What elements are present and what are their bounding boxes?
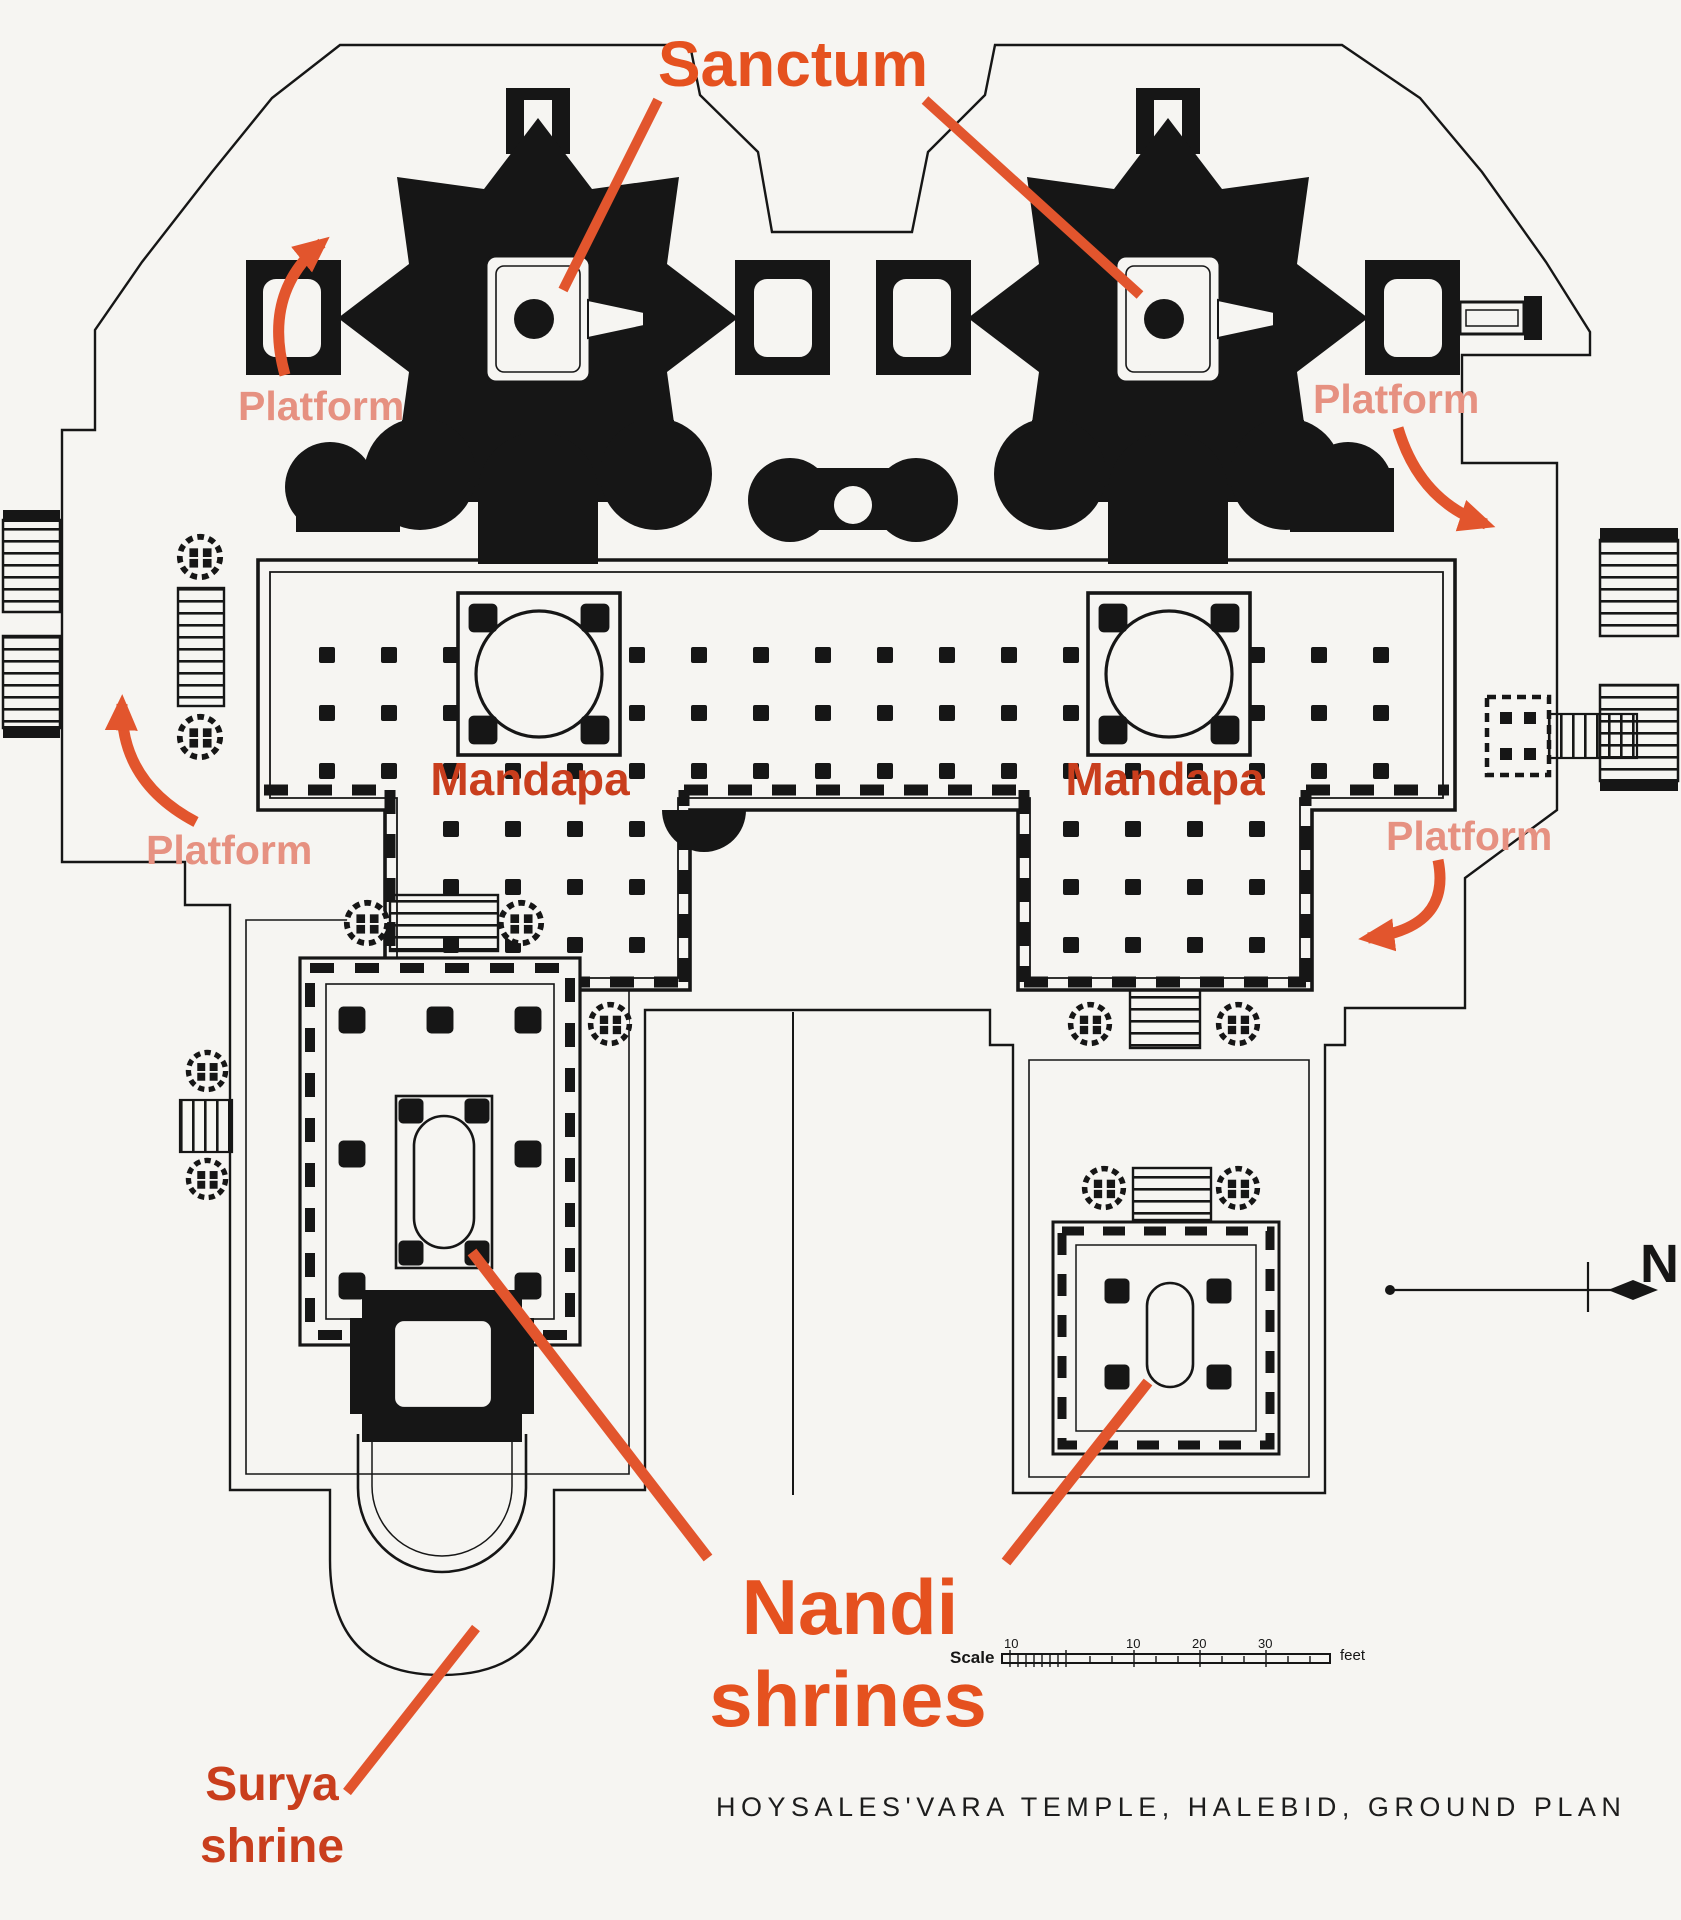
left-nandi-pavilion	[180, 895, 580, 1345]
temple-ground-plan: N Scale 10 10 20 30 feet HOYSALES'VARA T…	[0, 0, 1681, 1920]
surya-shrine-label-line2: shrine	[200, 1820, 344, 1873]
scale-tick-0: 10	[1004, 1636, 1018, 1651]
right-sanctum-deity-spot	[1144, 299, 1184, 339]
left-sanctum-deity-spot	[514, 299, 554, 339]
left-mandapa-pavilion	[458, 593, 620, 755]
west-entrance	[178, 537, 224, 757]
platform-label-top-right: Platform	[1313, 376, 1479, 422]
scale-tick-1: 10	[1126, 1636, 1140, 1651]
plan-caption: HOYSALES'VARA TEMPLE, HALEBID, GROUND PL…	[716, 1792, 1626, 1822]
right-mandapa-pavilion	[1088, 593, 1250, 755]
platform-arrow-mid-left	[122, 704, 196, 822]
mandapa-label-left: Mandapa	[430, 753, 630, 805]
right-wing-pillars	[1032, 802, 1300, 967]
scale-tick-2: 20	[1192, 1636, 1206, 1651]
right-nandi-pavilion	[1053, 1168, 1279, 1454]
pranala-spout	[1460, 296, 1542, 340]
scale-tick-3: 30	[1258, 1636, 1272, 1651]
right-nandi-pedestal	[1147, 1283, 1193, 1387]
left-nandi-pedestal	[414, 1116, 474, 1248]
compass-origin-dot	[1385, 1285, 1395, 1295]
scale-bar: Scale 10 10 20 30 feet	[950, 1636, 1366, 1667]
north-compass: N	[1385, 1234, 1679, 1312]
nandi-shrines-label-line1: Nandi	[742, 1563, 959, 1651]
mandapa-label-right: Mandapa	[1065, 753, 1265, 805]
platform-arrow-top-right	[1398, 428, 1486, 524]
surya-shrine-label-line1: Surya	[205, 1758, 339, 1811]
compass-north-label: N	[1640, 1234, 1679, 1294]
platform-label-top-left: Platform	[238, 383, 404, 429]
scale-unit-label: feet	[1340, 1647, 1366, 1664]
west-outer-stairs	[3, 510, 60, 738]
platform-label-mid-left: Platform	[146, 827, 312, 873]
platform-label-mid-right: Platform	[1386, 813, 1552, 859]
right-south-porch	[1071, 990, 1258, 1048]
sanctum-label: Sanctum	[658, 28, 928, 100]
nandi-shrines-label-line2: shrines	[709, 1655, 986, 1743]
platform-arrow-mid-right	[1368, 860, 1440, 938]
surya-shrine-structure	[350, 1290, 534, 1572]
temple-plan-page: N Scale 10 10 20 30 feet HOYSALES'VARA T…	[0, 0, 1681, 1920]
